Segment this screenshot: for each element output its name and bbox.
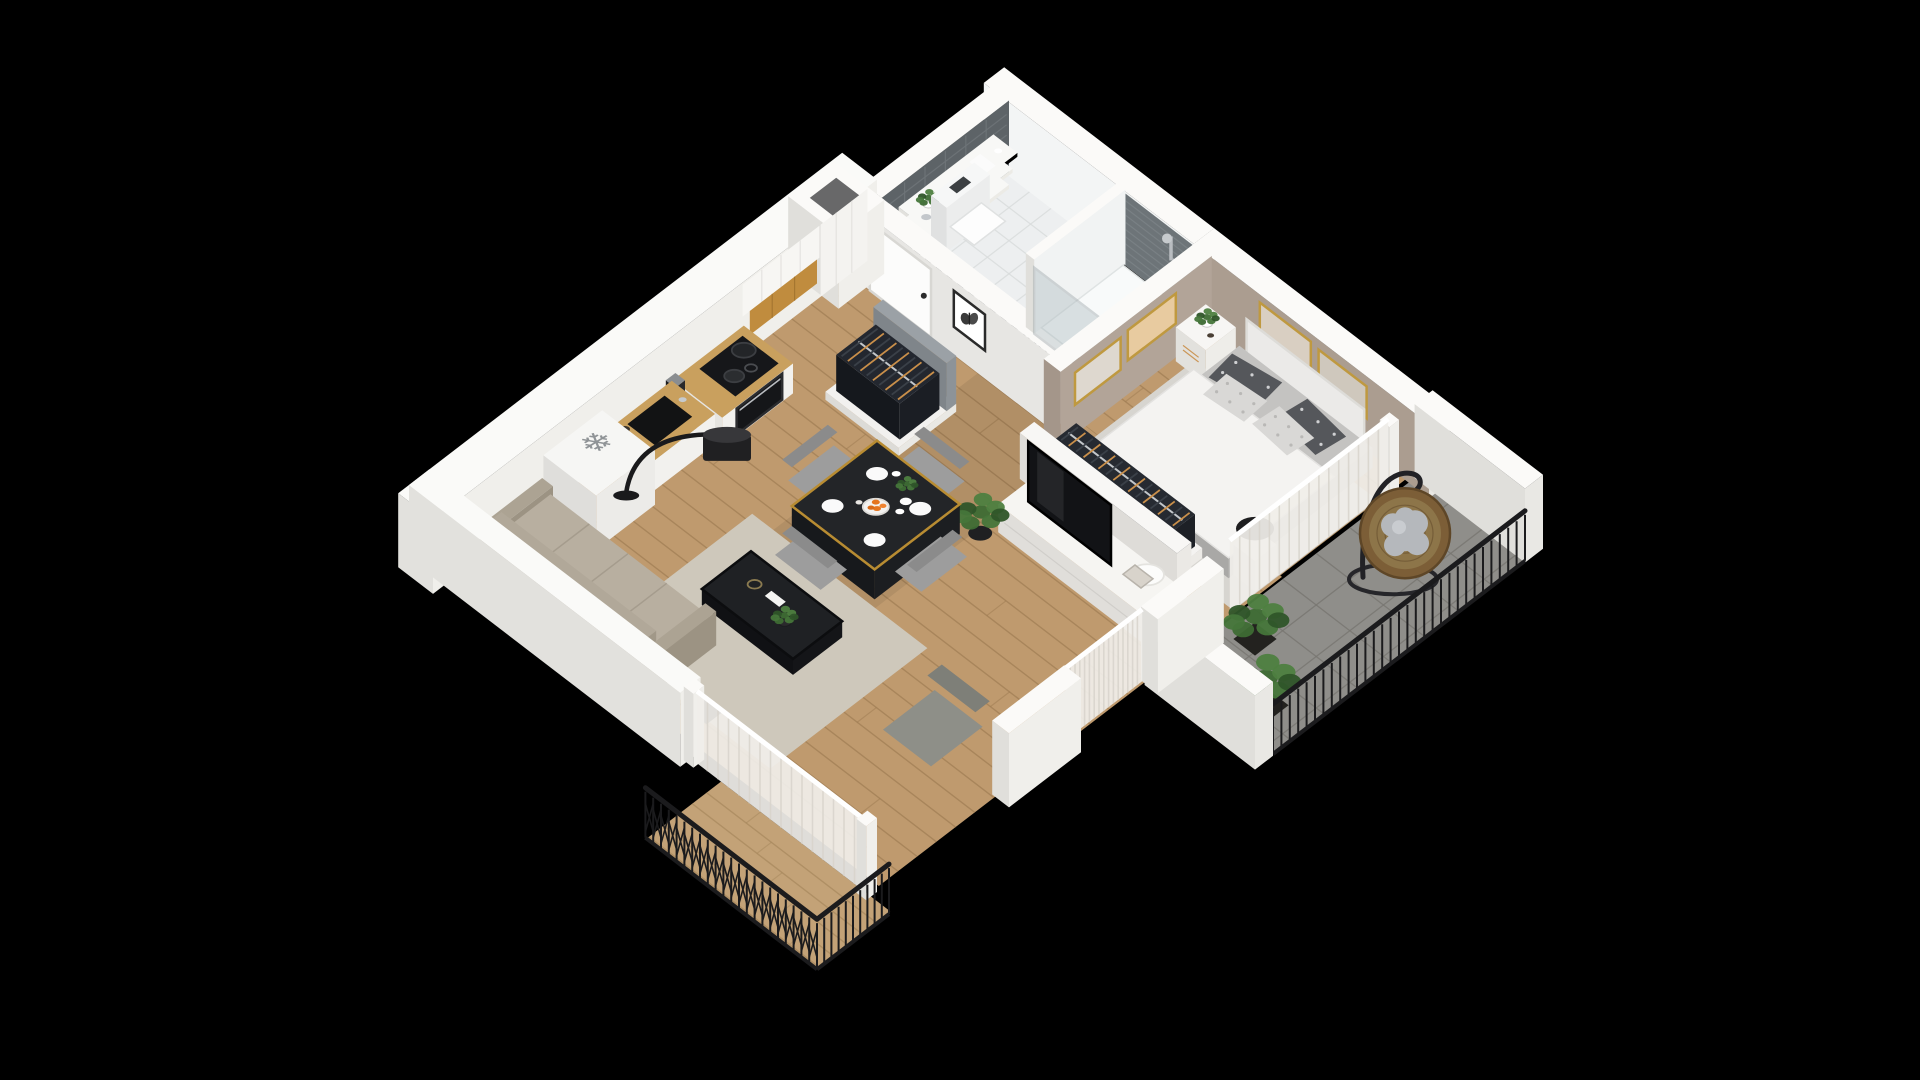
nightstand-bottle	[1207, 333, 1214, 337]
floor-plan-svg: ❄	[0, 0, 1920, 1080]
entry-door-handle	[921, 293, 927, 299]
cooktop-pot-1	[732, 343, 756, 358]
apartment-floor-plan-render: ❄	[0, 0, 1920, 1080]
kitchen-faucet	[679, 397, 687, 402]
bath-cup	[994, 148, 1002, 153]
toilet-paper-holder	[921, 214, 931, 220]
cooktop-pot-2	[724, 370, 744, 382]
